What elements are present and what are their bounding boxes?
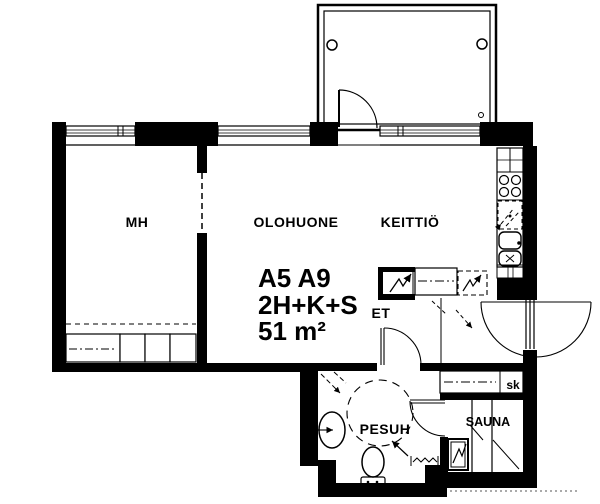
- apartment-area: 51 m²: [258, 316, 326, 346]
- wall-east-upper: [523, 146, 537, 290]
- wardrobe-3: [170, 334, 196, 362]
- floor-slope-arrow: [321, 374, 340, 393]
- kitchen-label: KEITTIÖ: [381, 214, 440, 230]
- entrance-door: [481, 291, 591, 357]
- windows: [66, 126, 480, 145]
- sauna-door-swing-arc: [410, 401, 445, 436]
- wall-south-west: [52, 363, 315, 372]
- wardrobe-wide: [66, 334, 120, 362]
- balcony-outer-rail: [318, 5, 496, 130]
- window-kitchen: [380, 126, 480, 145]
- kitchen-wall-block: [497, 278, 537, 300]
- window-bedroom: [66, 126, 135, 145]
- sauna-bench-mark: [493, 440, 519, 469]
- stove: [500, 176, 521, 197]
- toilet-bowl: [362, 447, 384, 477]
- labels: MH OLOHUONE KEITTIÖ ET PESUH SAUNA sk A5…: [126, 214, 520, 437]
- wall-north-pier-3: [480, 122, 533, 146]
- floor-drain-arrow: [392, 441, 408, 456]
- washbasin: [317, 412, 345, 448]
- wardrobe-2: [145, 334, 170, 362]
- window-living-room: [218, 126, 310, 145]
- sauna-label: SAUNA: [466, 415, 510, 429]
- kitchen-lower-row: [378, 267, 487, 328]
- floor-plan-drawing: MH OLOHUONE KEITTIÖ ET PESUH SAUNA sk A5…: [0, 0, 600, 504]
- washroom-label: PESUH: [360, 421, 411, 437]
- kitchen-fixtures: [497, 148, 523, 278]
- threshold-mark: [411, 456, 438, 466]
- balcony-drain: [479, 113, 484, 118]
- closet-wall-south: [440, 393, 527, 400]
- washroom-wall-step: [318, 460, 336, 484]
- wall-north-pier-1: [135, 122, 218, 146]
- hall-slope-mark-1: [432, 301, 447, 315]
- sauna-room: [410, 400, 519, 472]
- closet-label: sk: [506, 378, 520, 392]
- wardrobe-1: [120, 334, 145, 362]
- bedroom-wardrobes: [66, 324, 196, 362]
- balcony: [318, 5, 496, 130]
- hall-slope-mark-2: [456, 310, 472, 328]
- lightning-icon: [463, 275, 481, 291]
- balcony-inner-rail: [324, 11, 490, 124]
- electrical-panel: [378, 267, 415, 300]
- balcony-post-right: [477, 39, 487, 49]
- entry-wall-left: [315, 363, 377, 371]
- wall-west: [52, 122, 66, 372]
- bedroom-wall-lower: [197, 233, 207, 363]
- wall-north-pier-2: [310, 122, 338, 146]
- balcony-post-left: [327, 40, 337, 50]
- drain-mark: [506, 255, 514, 262]
- faucet-dot: [517, 241, 521, 245]
- lightning-icon: [453, 444, 466, 463]
- balcony-door: [338, 90, 380, 145]
- apartment-info: A5 A9 2H+K+S 51 m²: [258, 263, 358, 346]
- sauna-heater: [448, 439, 468, 470]
- floor-slope-mark: [334, 372, 346, 383]
- apartment-unit: A5 A9: [258, 263, 331, 293]
- washroom-wall-south: [318, 483, 425, 497]
- entrance-door-swing-arc: [481, 302, 591, 357]
- sauna-wall-south: [447, 472, 537, 488]
- washroom-wall-west: [300, 363, 318, 466]
- bedroom-label: MH: [126, 214, 149, 230]
- sauna-wall-west: [440, 437, 448, 473]
- balcony-door-swing-arc: [339, 90, 377, 128]
- entry-label: ET: [372, 305, 391, 321]
- washroom-door: [381, 328, 421, 365]
- entry-cabinet: [415, 268, 457, 295]
- sauna-door: [410, 400, 445, 436]
- toilet: [361, 447, 385, 488]
- living-room-label: OLOHUONE: [254, 214, 339, 230]
- kitchen-sink: [499, 232, 521, 266]
- appliance-reservation: [458, 271, 487, 295]
- entry-wall-right: [420, 363, 527, 371]
- washroom-door-swing-arc: [384, 328, 421, 365]
- floor-plan: MH OLOHUONE KEITTIÖ ET PESUH SAUNA sk A5…: [0, 0, 600, 504]
- dishwasher-reservation: [498, 201, 522, 229]
- bedroom-wall-upper: [197, 146, 207, 173]
